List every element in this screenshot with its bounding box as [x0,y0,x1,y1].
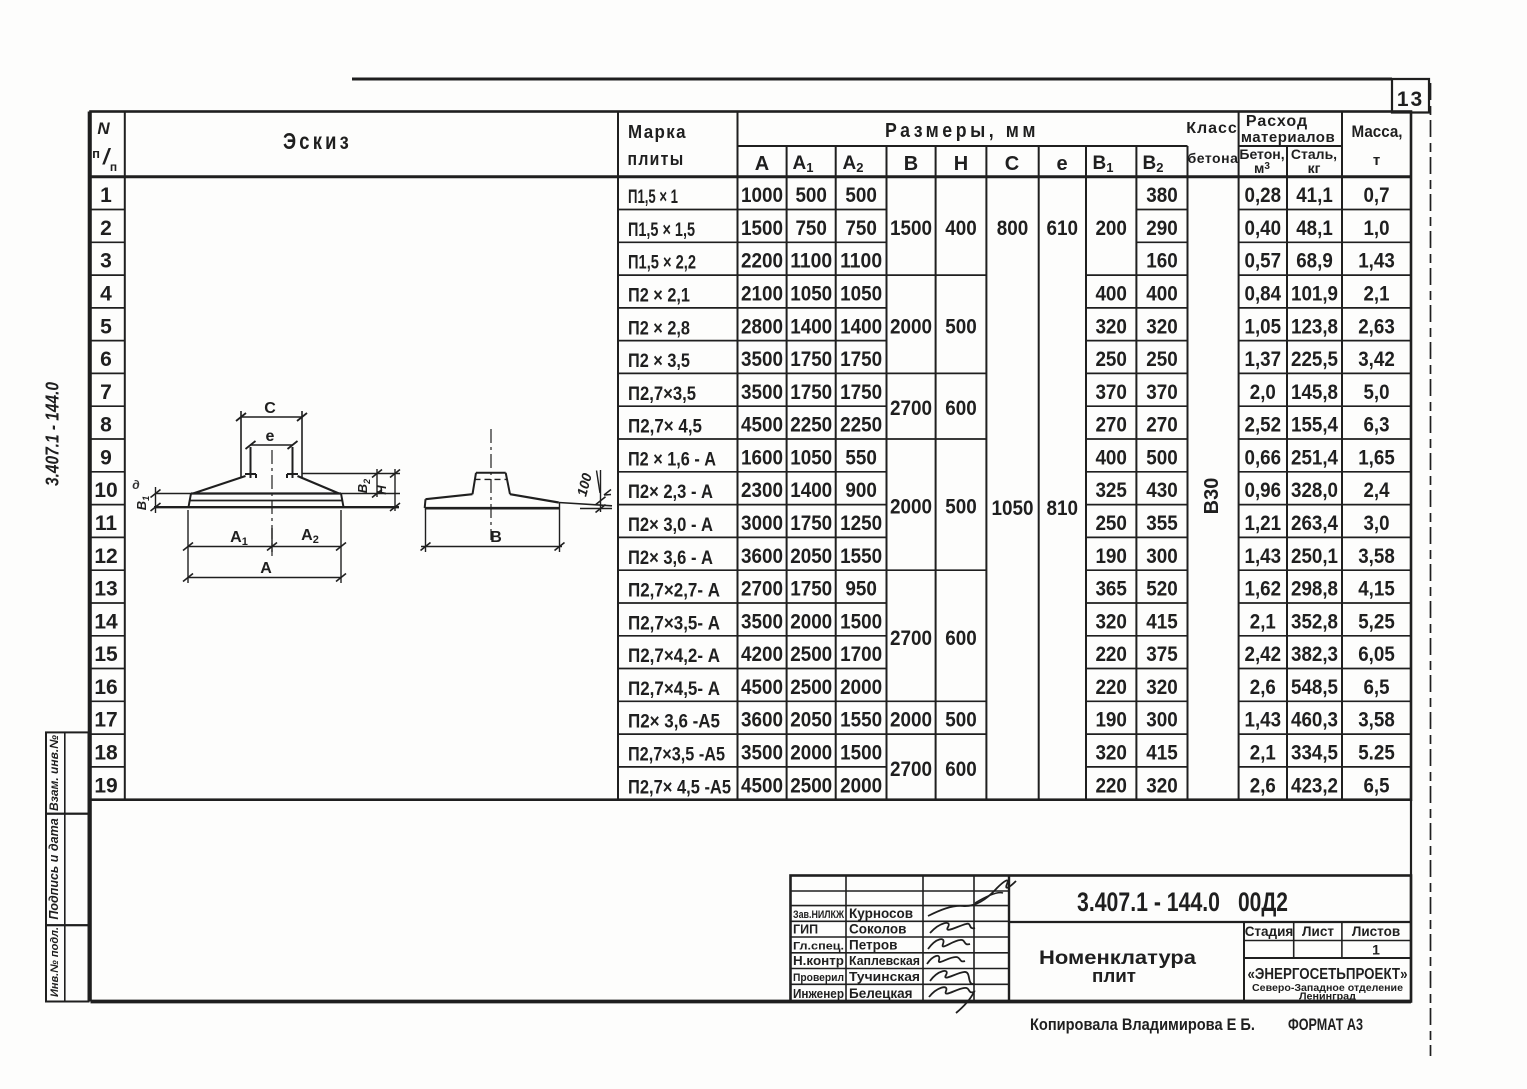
svg-text:160: 160 [1146,250,1178,273]
svg-text:П2 × 2,8: П2 × 2,8 [628,318,690,339]
svg-text:Эскиз: Эскиз [283,128,352,154]
svg-text:1400: 1400 [840,315,882,338]
svg-text:11: 11 [95,512,118,535]
svg-text:250: 250 [1095,512,1127,535]
svg-text:375: 375 [1146,643,1178,666]
svg-text:250,1: 250,1 [1291,545,1338,568]
svg-text:4200: 4200 [741,643,783,666]
svg-text:250: 250 [1146,348,1178,371]
svg-text:Класс: Класс [1186,120,1238,137]
svg-text:1,05: 1,05 [1245,315,1282,338]
svg-text:400: 400 [1095,283,1127,306]
svg-text:П2× 3,6 -А5: П2× 3,6 -А5 [628,712,720,733]
svg-text:1750: 1750 [790,578,832,601]
svg-text:6,5: 6,5 [1364,774,1390,797]
svg-text:1750: 1750 [840,348,882,371]
svg-text:6,5: 6,5 [1364,676,1390,699]
svg-text:325: 325 [1095,479,1127,502]
svg-text:кг: кг [1308,160,1321,176]
svg-text:600: 600 [945,758,977,781]
svg-text:2,6: 2,6 [1250,774,1276,797]
svg-text:3500: 3500 [741,381,783,404]
svg-text:П2,7×4,2- А: П2,7×4,2- А [628,646,720,667]
svg-text:2,4: 2,4 [1364,479,1390,502]
svg-text:2500: 2500 [790,774,832,797]
svg-text:320: 320 [1146,676,1178,699]
svg-text:Марка: Марка [628,122,687,142]
svg-text:1050: 1050 [840,283,882,306]
svg-text:400: 400 [945,217,977,240]
svg-text:6,3: 6,3 [1364,414,1390,437]
svg-text:2700: 2700 [741,578,783,601]
svg-text:2700: 2700 [890,758,932,781]
svg-text:1100: 1100 [840,250,882,273]
svg-text:500: 500 [945,315,977,338]
svg-text:370: 370 [1095,381,1127,404]
svg-text:0,66: 0,66 [1245,446,1282,469]
svg-text:300: 300 [1146,545,1178,568]
svg-text:2000: 2000 [790,610,832,633]
svg-text:3.407.1 - 144.0: 3.407.1 - 144.0 [1077,887,1220,917]
svg-text:Н.контр: Н.контр [793,954,844,968]
svg-text:П1,5 × 1: П1,5 × 1 [628,187,678,208]
svg-text:Петров: Петров [849,937,897,952]
svg-text:270: 270 [1146,414,1178,437]
svg-text:520: 520 [1146,578,1178,601]
svg-text:9: 9 [100,446,112,469]
svg-text:600: 600 [945,627,977,650]
svg-text:251,4: 251,4 [1291,446,1338,469]
svg-text:П2,7×2,7- А: П2,7×2,7- А [628,581,720,602]
svg-text:300: 300 [1146,709,1178,732]
svg-text:430: 430 [1146,479,1178,502]
svg-text:Стадия: Стадия [1245,924,1294,939]
svg-text:13: 13 [94,578,117,601]
svg-text:Тучинская: Тучинская [849,970,920,984]
svg-text:190: 190 [1095,709,1127,732]
svg-text:2500: 2500 [790,643,832,666]
svg-text:2,1: 2,1 [1250,742,1276,765]
svg-text:220: 220 [1095,676,1127,699]
svg-text:В: В [904,153,918,175]
svg-text:334,5: 334,5 [1291,742,1338,765]
svg-text:1550: 1550 [840,709,882,732]
svg-text:320: 320 [1095,315,1127,338]
svg-text:500: 500 [1146,446,1178,469]
svg-text:220: 220 [1095,774,1127,797]
svg-text:П1,5 × 2,2: П1,5 × 2,2 [628,253,696,274]
svg-text:N: N [97,119,110,138]
svg-text:П2,7×3,5 -А5: П2,7×3,5 -А5 [628,745,725,766]
svg-text:1050: 1050 [790,283,832,306]
svg-text:298,8: 298,8 [1291,578,1338,601]
svg-text:П2× 3,0 - А: П2× 3,0 - А [628,515,713,536]
svg-text:950: 950 [845,578,877,601]
svg-text:7: 7 [100,381,112,404]
svg-text:2700: 2700 [890,397,932,420]
svg-text:2050: 2050 [790,545,832,568]
svg-text:Зав.НИЛКЖ: Зав.НИЛКЖ [793,909,844,921]
svg-text:550: 550 [845,446,877,469]
svg-text:5: 5 [100,315,112,338]
svg-text:2: 2 [100,217,112,240]
svg-text:2000: 2000 [840,676,882,699]
svg-text:1,37: 1,37 [1245,348,1282,371]
svg-text:200: 200 [1095,217,1127,240]
svg-text:4500: 4500 [741,414,783,437]
svg-text:13: 13 [1397,88,1424,111]
svg-text:Ленинград: Ленинград [1299,991,1356,1003]
svg-text:д: д [132,478,139,492]
svg-text:е: е [266,428,275,445]
svg-text:320: 320 [1095,742,1127,765]
svg-text:900: 900 [845,479,877,502]
svg-text:1,21: 1,21 [1245,512,1282,535]
svg-text:1400: 1400 [790,315,832,338]
svg-text:3000: 3000 [741,512,783,535]
svg-text:10: 10 [94,479,117,502]
svg-text:ГИП: ГИП [793,923,818,937]
svg-text:2250: 2250 [840,414,882,437]
svg-text:1050: 1050 [790,446,832,469]
svg-text:6,05: 6,05 [1358,643,1395,666]
svg-text:п: п [92,146,100,161]
svg-text:1750: 1750 [790,381,832,404]
svg-text:5,0: 5,0 [1364,381,1390,404]
svg-text:1750: 1750 [840,381,882,404]
svg-text:2250: 2250 [790,414,832,437]
svg-text:1,65: 1,65 [1358,446,1395,469]
svg-text:19: 19 [94,774,117,797]
svg-text:600: 600 [945,397,977,420]
svg-text:1700: 1700 [840,643,882,666]
svg-text:500: 500 [845,184,877,207]
svg-text:е: е [1056,153,1067,175]
svg-text:Н: Н [374,485,389,495]
svg-text:3500: 3500 [741,348,783,371]
svg-text:2000: 2000 [840,774,882,797]
svg-text:5.25: 5.25 [1358,742,1395,765]
svg-text:290: 290 [1146,217,1178,240]
svg-text:415: 415 [1146,742,1178,765]
svg-text:1600: 1600 [741,446,783,469]
svg-text:2300: 2300 [741,479,783,502]
svg-text:0,28: 0,28 [1245,184,1282,207]
svg-text:1750: 1750 [790,512,832,535]
svg-text:3500: 3500 [741,610,783,633]
svg-text:2800: 2800 [741,315,783,338]
svg-text:П2,7×3,5- А: П2,7×3,5- А [628,613,720,634]
svg-text:П2,7× 4,5 -А5: П2,7× 4,5 -А5 [628,777,731,798]
svg-text:250: 250 [1095,348,1127,371]
svg-text:3,58: 3,58 [1358,709,1395,732]
svg-text:3500: 3500 [741,742,783,765]
svg-text:220: 220 [1095,643,1127,666]
svg-text:2700: 2700 [890,627,932,650]
svg-text:4,15: 4,15 [1358,578,1395,601]
svg-text:1250: 1250 [840,512,882,535]
svg-text:3.407.1 - 144.0: 3.407.1 - 144.0 [43,382,63,486]
svg-text:0,7: 0,7 [1364,184,1390,207]
svg-text:145,8: 145,8 [1291,381,1338,404]
svg-text:ФОРМАТ А3: ФОРМАТ А3 [1288,1016,1363,1034]
svg-text:1,43: 1,43 [1245,709,1282,732]
svg-text:5,25: 5,25 [1358,610,1395,633]
svg-text:400: 400 [1095,446,1127,469]
svg-text:Белецкая: Белецкая [849,986,913,1001]
svg-text:320: 320 [1095,610,1127,633]
svg-text:1400: 1400 [790,479,832,502]
svg-text:А: А [755,153,769,175]
svg-text:Гл.спец.: Гл.спец. [793,940,844,952]
svg-text:380: 380 [1146,184,1178,207]
svg-text:460,3: 460,3 [1291,709,1338,732]
svg-text:3,0: 3,0 [1364,512,1390,535]
svg-text:П2,7× 4,5: П2,7× 4,5 [628,417,702,438]
svg-text:Лист: Лист [1302,924,1334,939]
svg-text:Расход: Расход [1246,113,1308,130]
svg-text:1,62: 1,62 [1245,578,1282,601]
svg-text:1,43: 1,43 [1245,545,1282,568]
svg-text:610: 610 [1047,217,1079,240]
svg-text:«ЭНЕРГОСЕТЬПРОЕКТ»: «ЭНЕРГОСЕТЬПРОЕКТ» [1248,966,1408,983]
svg-text:3600: 3600 [741,709,783,732]
svg-text:18: 18 [94,742,118,765]
svg-text:Листов: Листов [1352,924,1400,939]
svg-text:415: 415 [1146,610,1178,633]
svg-text:355: 355 [1146,512,1178,535]
svg-text:365: 365 [1095,578,1127,601]
svg-text:1500: 1500 [840,742,882,765]
svg-text:500: 500 [945,709,977,732]
svg-text:Соколов: Соколов [849,922,906,937]
svg-text:14: 14 [94,610,118,633]
svg-text:2200: 2200 [741,250,783,273]
svg-text:352,8: 352,8 [1291,610,1338,633]
svg-text:т: т [1373,152,1380,169]
svg-text:1050: 1050 [992,497,1034,520]
svg-text:500: 500 [795,184,827,207]
svg-text:Взам. инв.№: Взам. инв.№ [47,735,61,811]
svg-text:П2,7×3,5: П2,7×3,5 [628,384,696,405]
svg-text:2000: 2000 [790,742,832,765]
svg-text:423,2: 423,2 [1291,774,1338,797]
svg-text:3,58: 3,58 [1358,545,1395,568]
svg-text:68,9: 68,9 [1296,250,1333,273]
svg-text:750: 750 [845,217,877,240]
svg-text:Курносов: Курносов [849,906,913,921]
svg-text:материалов: материалов [1241,129,1335,146]
svg-text:500: 500 [945,496,977,519]
svg-text:Масса,: Масса, [1352,122,1403,141]
svg-text:0,57: 0,57 [1245,250,1282,273]
svg-text:0,96: 0,96 [1245,479,1282,502]
svg-text:190: 190 [1095,545,1127,568]
svg-text:2000: 2000 [890,496,932,519]
svg-text:2100: 2100 [741,283,783,306]
svg-text:123,8: 123,8 [1291,315,1338,338]
svg-text:П2 × 1,6 - А: П2 × 1,6 - А [628,449,716,470]
svg-text:2,1: 2,1 [1364,283,1390,306]
svg-text:В: В [490,529,502,546]
svg-text:А: А [260,560,272,577]
svg-text:750: 750 [795,217,827,240]
svg-text:4500: 4500 [741,676,783,699]
svg-text:48,1: 48,1 [1296,217,1333,240]
svg-text:1,43: 1,43 [1358,250,1395,273]
svg-text:0,84: 0,84 [1245,283,1282,306]
svg-text:2050: 2050 [790,709,832,732]
svg-text:2,0: 2,0 [1250,381,1276,404]
svg-text:8: 8 [100,414,112,437]
svg-text:548,5: 548,5 [1291,676,1338,699]
svg-text:00Д2: 00Д2 [1238,887,1288,917]
svg-text:328,0: 328,0 [1291,479,1338,502]
svg-text:2500: 2500 [790,676,832,699]
svg-text:16: 16 [94,676,117,699]
svg-text:1: 1 [100,184,112,207]
svg-text:400: 400 [1146,283,1178,306]
svg-text:101,9: 101,9 [1291,283,1338,306]
svg-text:Инженер: Инженер [793,987,844,1001]
svg-text:263,4: 263,4 [1291,512,1338,535]
svg-text:Инв.№ подл.: Инв.№ подл. [49,927,61,997]
svg-text:1500: 1500 [840,610,882,633]
svg-text:2,6: 2,6 [1250,676,1276,699]
svg-text:Копировала Владимирова Е Б.: Копировала Владимирова Е Б. [1030,1016,1255,1034]
svg-text:6: 6 [100,348,112,371]
svg-text:370: 370 [1146,381,1178,404]
svg-text:3: 3 [100,250,112,273]
svg-text:225,5: 225,5 [1291,348,1338,371]
svg-text:17: 17 [94,709,117,732]
svg-text:270: 270 [1095,414,1127,437]
svg-text:810: 810 [1047,497,1079,520]
svg-text:4500: 4500 [741,774,783,797]
svg-text:2,1: 2,1 [1250,610,1276,633]
svg-text:В30: В30 [1201,478,1223,515]
svg-text:С: С [264,400,276,417]
svg-text:4: 4 [100,283,112,306]
svg-text:41,1: 41,1 [1296,184,1333,207]
svg-text:Подпись и дата: Подпись и дата [47,818,61,919]
svg-text:плит: плит [1092,966,1136,986]
svg-text:155,4: 155,4 [1291,414,1338,437]
svg-text:С: С [1005,153,1019,175]
svg-text:П2,7×4,5- А: П2,7×4,5- А [628,679,720,700]
svg-text:320: 320 [1146,774,1178,797]
svg-text:П1,5 × 1,5: П1,5 × 1,5 [628,220,695,241]
svg-text:1,0: 1,0 [1364,217,1390,240]
svg-text:1100: 1100 [790,250,832,273]
svg-text:3,42: 3,42 [1358,348,1395,371]
svg-text:2000: 2000 [890,709,932,732]
svg-text:1500: 1500 [741,217,783,240]
svg-text:1750: 1750 [790,348,832,371]
svg-text:П2× 2,3 - А: П2× 2,3 - А [628,482,713,503]
svg-text:320: 320 [1146,315,1178,338]
svg-text:1550: 1550 [840,545,882,568]
svg-text:2000: 2000 [890,315,932,338]
svg-text:800: 800 [997,217,1029,240]
svg-text:12: 12 [94,545,117,568]
svg-text:2,42: 2,42 [1245,643,1282,666]
svg-text:Каплевская: Каплевская [849,954,920,968]
svg-text:0,40: 0,40 [1245,217,1282,240]
svg-text:бетона: бетона [1188,150,1239,166]
svg-text:15: 15 [94,643,118,666]
svg-text:Н: Н [954,153,968,175]
svg-text:Проверил: Проверил [793,972,844,984]
svg-text:Размеры, мм: Размеры, мм [885,120,1039,142]
svg-text:382,3: 382,3 [1291,643,1338,666]
svg-text:2,63: 2,63 [1358,315,1395,338]
svg-text:1000: 1000 [741,184,783,207]
svg-text:1: 1 [1372,942,1380,958]
svg-text:П2 × 3,5: П2 × 3,5 [628,351,690,372]
svg-text:2,52: 2,52 [1245,414,1282,437]
svg-text:п: п [110,160,117,174]
svg-text:плиты: плиты [628,149,685,169]
svg-text:П2 × 2,1: П2 × 2,1 [628,286,690,307]
svg-text:3600: 3600 [741,545,783,568]
svg-text:П2× 3,6 - А: П2× 3,6 - А [628,548,713,569]
svg-text:1500: 1500 [890,217,932,240]
